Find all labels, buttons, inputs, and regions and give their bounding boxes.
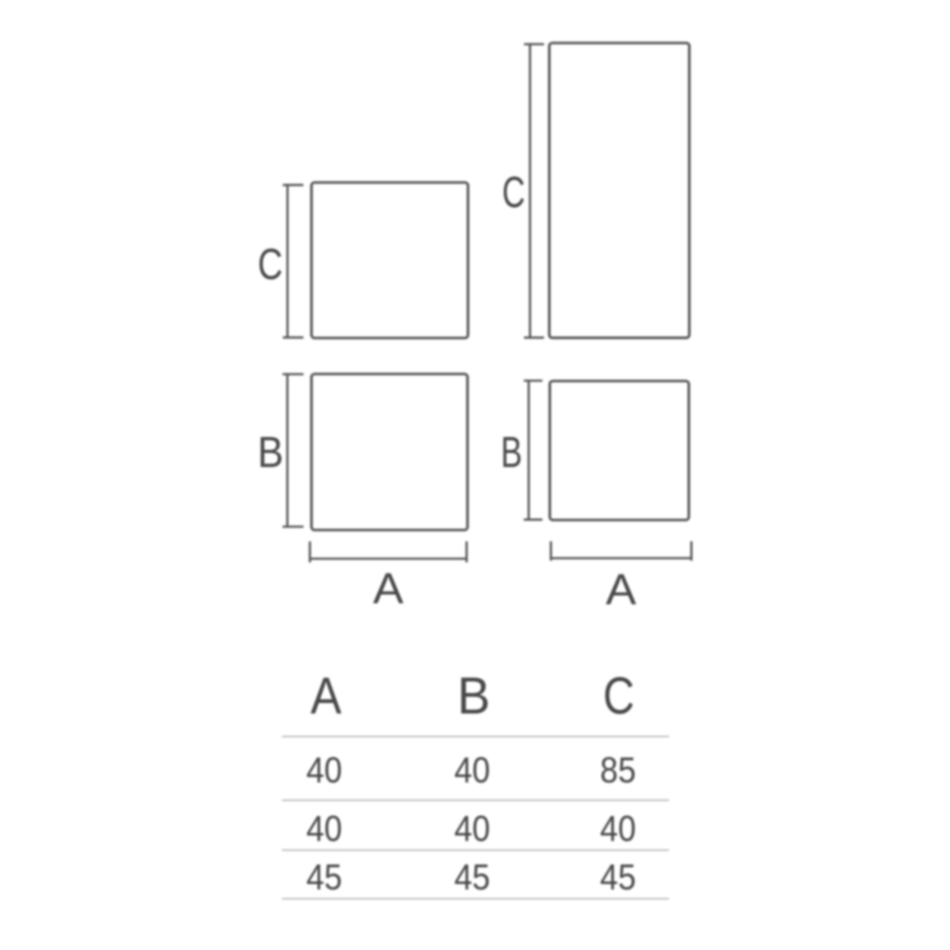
svg-text:A: A	[373, 565, 404, 614]
svg-text:C: C	[502, 168, 525, 217]
svg-text:85: 85	[600, 750, 636, 791]
svg-text:40: 40	[454, 750, 490, 791]
svg-text:40: 40	[306, 808, 342, 849]
svg-text:40: 40	[306, 750, 342, 791]
svg-text:A: A	[311, 667, 342, 725]
svg-text:C: C	[258, 240, 283, 289]
svg-text:B: B	[457, 667, 490, 725]
svg-text:45: 45	[454, 857, 490, 898]
svg-text:C: C	[603, 667, 635, 725]
svg-text:45: 45	[306, 857, 342, 898]
svg-text:40: 40	[454, 808, 490, 849]
svg-text:45: 45	[600, 857, 636, 898]
svg-text:A: A	[606, 566, 637, 615]
svg-text:B: B	[501, 428, 523, 477]
svg-text:B: B	[258, 428, 284, 477]
svg-text:40: 40	[600, 808, 636, 849]
